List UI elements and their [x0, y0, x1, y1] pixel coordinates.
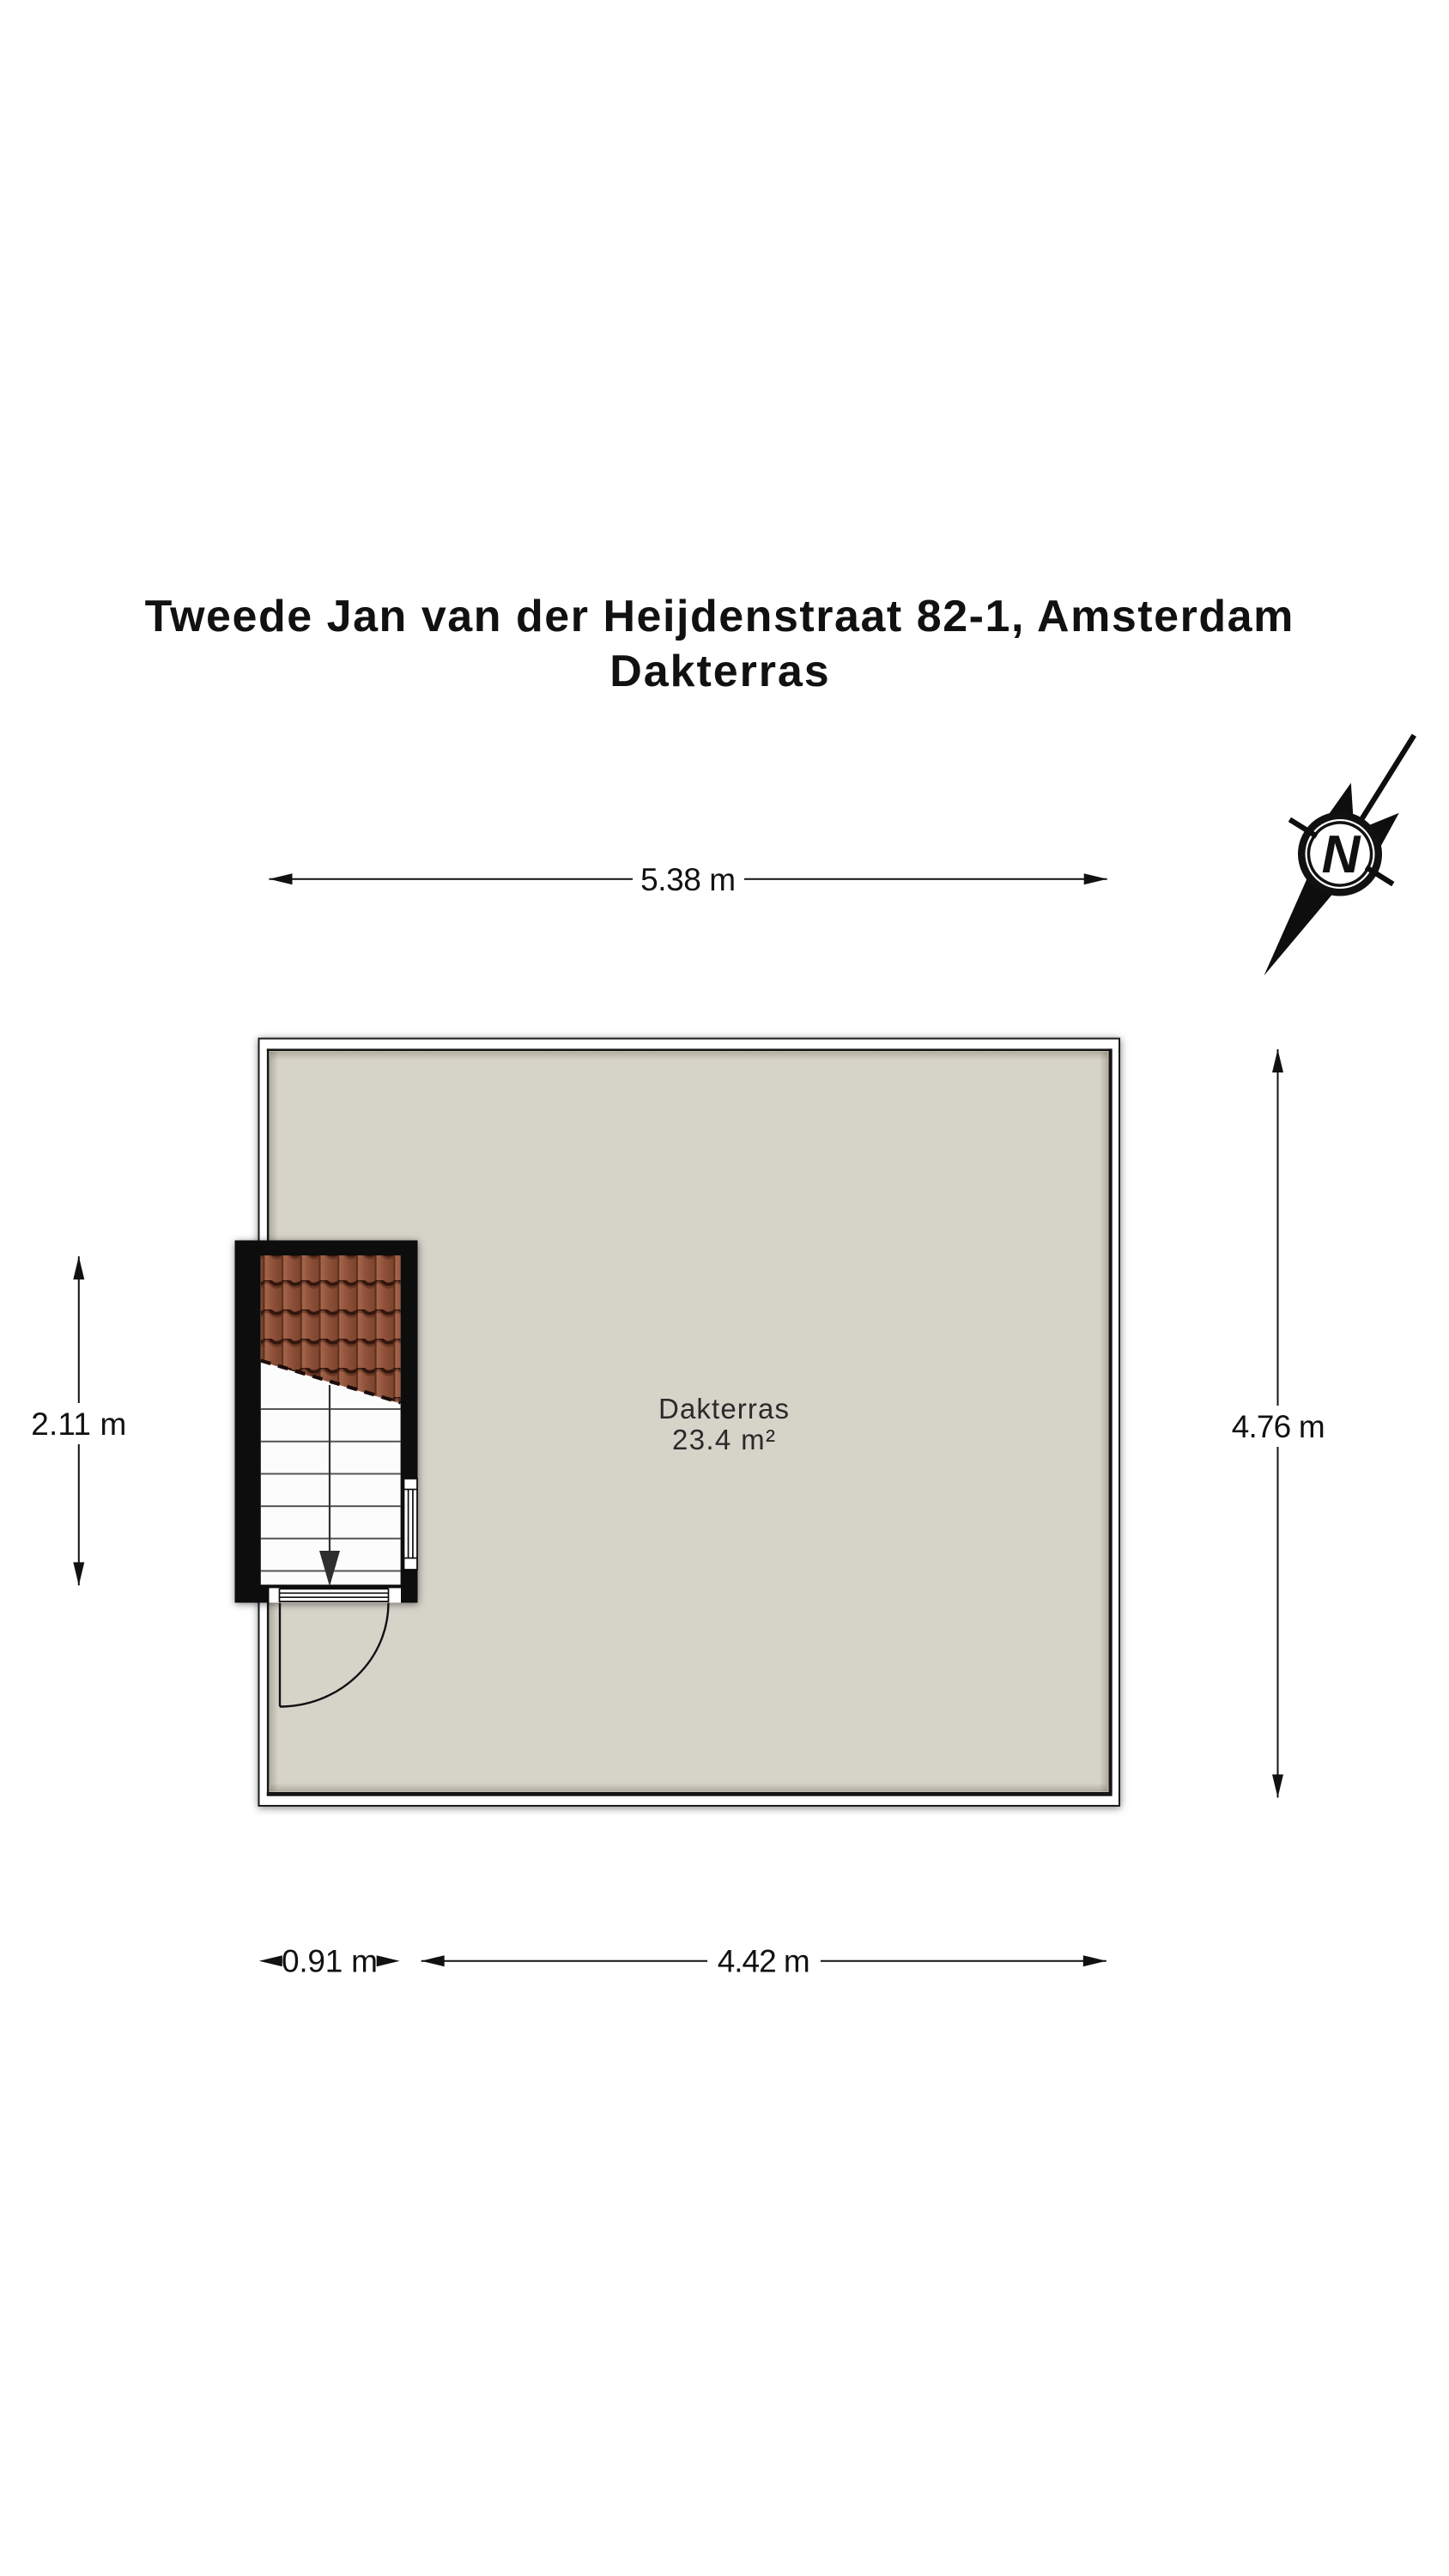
svg-text:Dakterras: Dakterras: [609, 647, 828, 696]
svg-text:Dakterras: Dakterras: [658, 1393, 789, 1425]
svg-text:4.42 m: 4.42 m: [718, 1944, 810, 1979]
svg-text:23.4 m²: 23.4 m²: [672, 1424, 775, 1455]
svg-text:5.38 m: 5.38 m: [640, 862, 736, 897]
svg-text:2.11 m: 2.11 m: [31, 1406, 126, 1442]
svg-text:4.76 m: 4.76 m: [1232, 1409, 1325, 1444]
svg-text:N: N: [1322, 825, 1361, 884]
svg-text:0.91 m: 0.91 m: [282, 1944, 378, 1979]
svg-text:Tweede Jan van der Heijdenstra: Tweede Jan van der Heijdenstraat 82-1, A…: [145, 592, 1294, 641]
